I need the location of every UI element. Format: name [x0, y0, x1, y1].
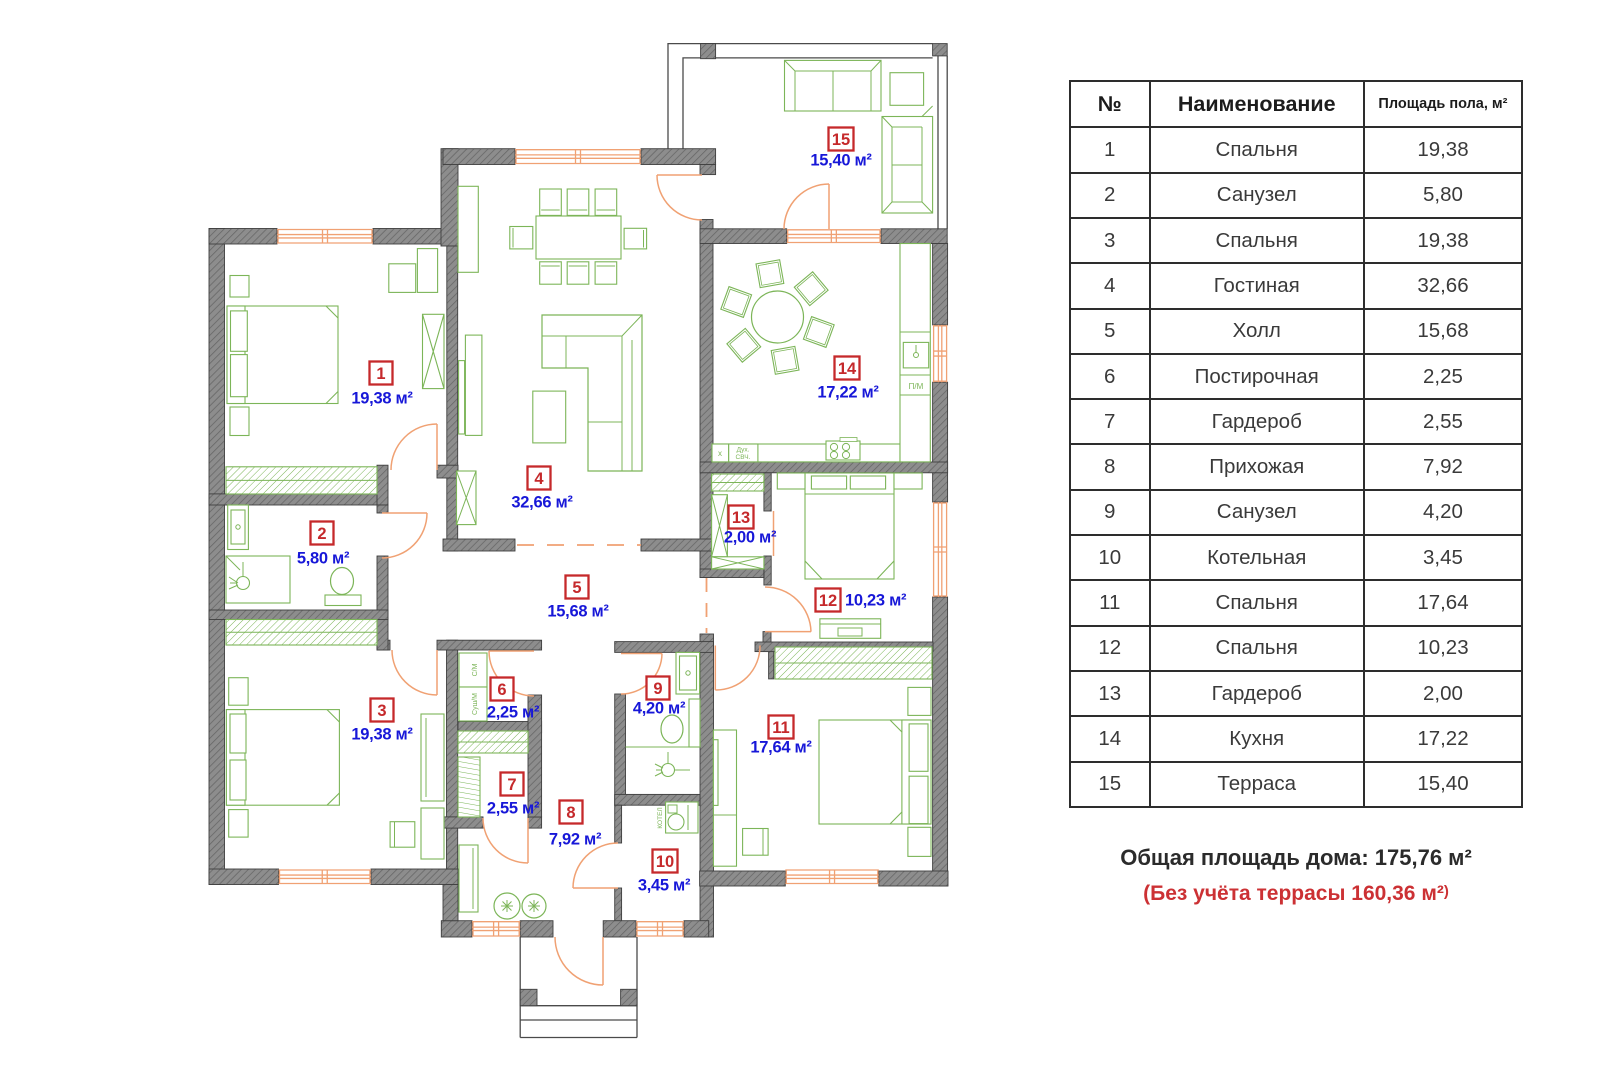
svg-text:3,45 м²: 3,45 м²: [638, 877, 691, 895]
svg-text:Суш/М: Суш/М: [472, 693, 479, 715]
svg-text:2,00 м²: 2,00 м²: [724, 529, 777, 547]
svg-text:32,66 м²: 32,66 м²: [511, 494, 573, 512]
svg-text:19,38 м²: 19,38 м²: [351, 390, 413, 408]
svg-text:15,40 м²: 15,40 м²: [810, 152, 872, 170]
svg-text:11: 11: [772, 719, 789, 737]
svg-text:7: 7: [507, 776, 516, 794]
svg-text:10,23 м²: 10,23 м²: [845, 592, 907, 610]
svg-text:17,22 м²: 17,22 м²: [817, 384, 879, 402]
svg-text:5: 5: [572, 579, 581, 597]
svg-text:С/М: С/М: [472, 663, 479, 676]
svg-text:15,68 м²: 15,68 м²: [547, 603, 609, 621]
svg-text:4,20 м²: 4,20 м²: [633, 700, 686, 718]
svg-text:П/М: П/М: [909, 382, 924, 391]
svg-text:8: 8: [566, 804, 575, 822]
svg-text:17,64 м²: 17,64 м²: [750, 739, 812, 757]
svg-text:КОТЕЛ: КОТЕЛ: [657, 807, 664, 828]
svg-text:4: 4: [534, 470, 544, 488]
svg-text:2,25 м²: 2,25 м²: [487, 704, 540, 722]
svg-text:12: 12: [819, 592, 837, 610]
svg-text:7,92 м²: 7,92 м²: [549, 831, 602, 849]
svg-text:9: 9: [653, 680, 662, 698]
svg-text:х: х: [718, 449, 722, 458]
svg-text:5,80 м²: 5,80 м²: [297, 550, 350, 568]
svg-text:13: 13: [732, 509, 750, 527]
svg-text:14: 14: [838, 360, 857, 378]
svg-text:10: 10: [656, 853, 674, 871]
svg-text:19,38 м²: 19,38 м²: [351, 726, 413, 744]
svg-text:1: 1: [376, 365, 385, 383]
svg-text:6: 6: [497, 681, 506, 699]
svg-text:Дух.: Дух.: [737, 447, 750, 454]
svg-text:3: 3: [377, 702, 386, 720]
svg-text:СВЧ.: СВЧ.: [736, 454, 751, 461]
svg-text:2,55 м²: 2,55 м²: [487, 800, 540, 818]
svg-text:2: 2: [317, 525, 326, 543]
svg-text:15: 15: [832, 131, 850, 149]
